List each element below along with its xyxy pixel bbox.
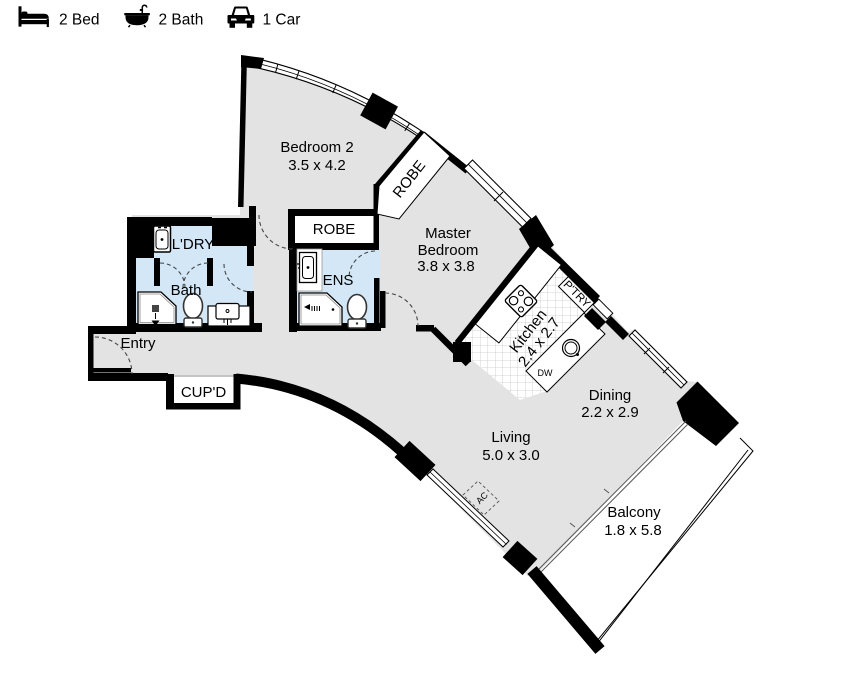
svg-text:5.0 x 3.0: 5.0 x 3.0 xyxy=(482,447,540,464)
svg-text:DW: DW xyxy=(538,368,553,378)
svg-text:L'DRY: L'DRY xyxy=(172,236,215,253)
svg-text:1.8 x 5.8: 1.8 x 5.8 xyxy=(604,522,662,539)
svg-text:CUP'D: CUP'D xyxy=(181,384,227,401)
svg-text:ROBE: ROBE xyxy=(313,221,356,238)
svg-text:Dining: Dining xyxy=(589,387,632,404)
svg-text:Bedroom: Bedroom xyxy=(418,242,479,259)
svg-text:1 Car: 1 Car xyxy=(263,12,301,29)
svg-text:Bedroom 2: Bedroom 2 xyxy=(280,139,353,156)
svg-text:Balcony: Balcony xyxy=(607,504,661,521)
svg-text:Bath: Bath xyxy=(171,282,202,299)
svg-text:2.2 x 2.9: 2.2 x 2.9 xyxy=(581,404,639,421)
svg-text:Living: Living xyxy=(491,429,530,446)
svg-text:ENS: ENS xyxy=(323,272,354,289)
svg-text:Entry: Entry xyxy=(120,335,156,352)
svg-text:2 Bed: 2 Bed xyxy=(59,12,100,29)
svg-text:3.5 x 4.2: 3.5 x 4.2 xyxy=(288,157,346,174)
svg-text:Master: Master xyxy=(425,225,471,242)
svg-text:3.8 x 3.8: 3.8 x 3.8 xyxy=(417,258,475,275)
svg-text:2 Bath: 2 Bath xyxy=(159,12,204,29)
